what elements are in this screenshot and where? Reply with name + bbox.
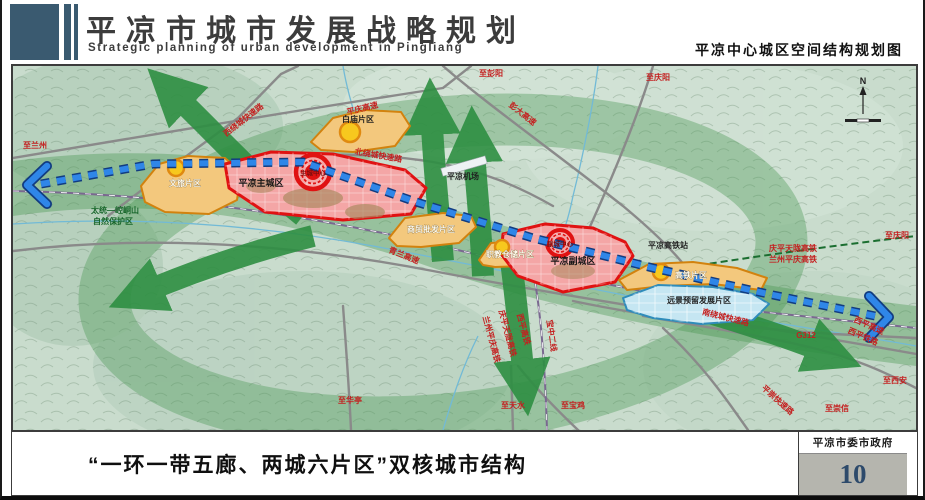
page-subtitle-en: Strategic planning of urban development …	[88, 42, 463, 54]
map-label: 平凉主城区	[238, 177, 283, 188]
map-label: 兰州平庆高铁	[769, 254, 817, 264]
map-label: 主城中心	[300, 168, 327, 177]
map-label: 高铁片区	[675, 270, 707, 280]
map-label: 文旅片区	[169, 178, 201, 188]
map-label: 至西安	[883, 375, 907, 385]
map-label: 职教仓储片区	[486, 249, 534, 259]
plan-sheet: 平凉市城市发展战略规划 Strategic planning of urban …	[0, 0, 925, 500]
map-label: 平凉高铁站	[648, 240, 688, 250]
map-label: 太统—崆峒山	[90, 205, 139, 215]
header-accent-bar	[74, 4, 78, 60]
header-accent-bar	[64, 4, 71, 60]
map-label: 至庆阳	[646, 72, 670, 82]
map-label: 至崇信	[825, 403, 849, 413]
map-label: 至彭阳	[479, 68, 503, 78]
map-label: 至天水	[501, 400, 526, 410]
header: 平凉市城市发展战略规划 Strategic planning of urban …	[2, 0, 923, 64]
map-canvas[interactable]: N 至兰州至彭阳至庆阳彭大高速平庆高速西绕城快速路北绕城快速路白庙片区平凉主城区…	[11, 64, 918, 432]
map-label: 至庆阳	[885, 230, 909, 240]
compass-n-label: N	[860, 76, 867, 86]
structure-caption: “一环一带五廊、两城六片区”双核城市结构	[88, 432, 527, 495]
stamp-box: 平凉市委市政府 10	[798, 432, 907, 495]
page-number: 10	[799, 454, 907, 495]
map-label: 平凉机场	[447, 171, 479, 181]
map-label: 平凉副城区	[550, 255, 595, 266]
map-label: 至华亭	[338, 395, 362, 405]
map-svg: N 至兰州至彭阳至庆阳彭大高速平庆高速西绕城快速路北绕城快速路白庙片区平凉主城区…	[13, 66, 916, 430]
map-label: G312	[796, 331, 816, 340]
map-label: 远景预留发展片区	[667, 295, 731, 305]
map-label: 至兰州	[23, 140, 47, 150]
map-title: 平凉中心城区空间结构规划图	[695, 40, 903, 60]
header-logo-block	[10, 4, 59, 60]
map-label: 副城中心	[547, 239, 574, 248]
map-label: 庆平天陇高铁	[768, 243, 817, 253]
map-label: 自然保护区	[93, 216, 133, 226]
map-label: 商贸批发片区	[407, 224, 455, 234]
authority-label: 平凉市委市政府	[799, 432, 907, 454]
map-label: 白庙片区	[342, 114, 374, 124]
footer: “一环一带五廊、两城六片区”双核城市结构 平凉市委市政府 10	[11, 432, 918, 496]
map-label: 至宝鸡	[561, 400, 585, 410]
